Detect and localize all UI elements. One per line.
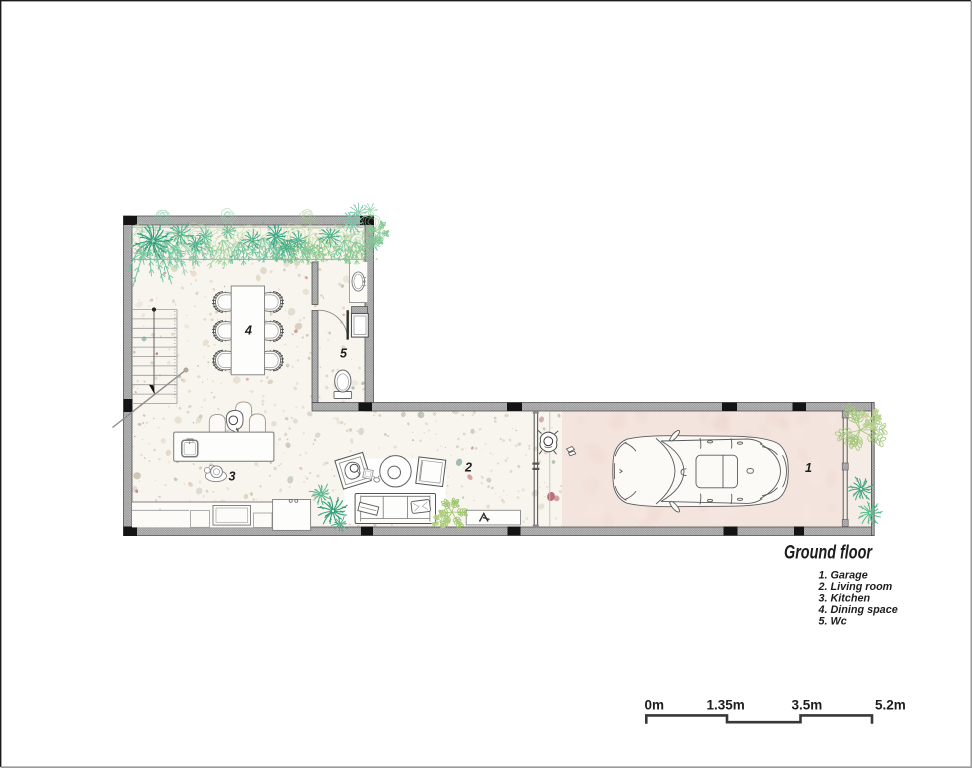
svg-text:5: 5 xyxy=(340,347,348,361)
svg-text:3.5m: 3.5m xyxy=(792,698,823,713)
svg-text:5.2m: 5.2m xyxy=(875,698,906,713)
svg-text:Ground floor: Ground floor xyxy=(784,542,873,564)
svg-text:3. Kitchen: 3. Kitchen xyxy=(819,592,871,604)
svg-text:1. Garage: 1. Garage xyxy=(819,569,868,581)
svg-text:5. Wc: 5. Wc xyxy=(819,615,847,627)
svg-text:0m: 0m xyxy=(645,698,665,713)
svg-text:2. Living room: 2. Living room xyxy=(818,581,893,593)
svg-text:1: 1 xyxy=(805,461,812,475)
svg-text:3: 3 xyxy=(229,470,236,484)
svg-text:4: 4 xyxy=(244,324,252,338)
svg-text:2: 2 xyxy=(464,461,472,475)
svg-text:4. Dining space: 4. Dining space xyxy=(818,604,898,616)
svg-text:1.35m: 1.35m xyxy=(707,698,745,713)
